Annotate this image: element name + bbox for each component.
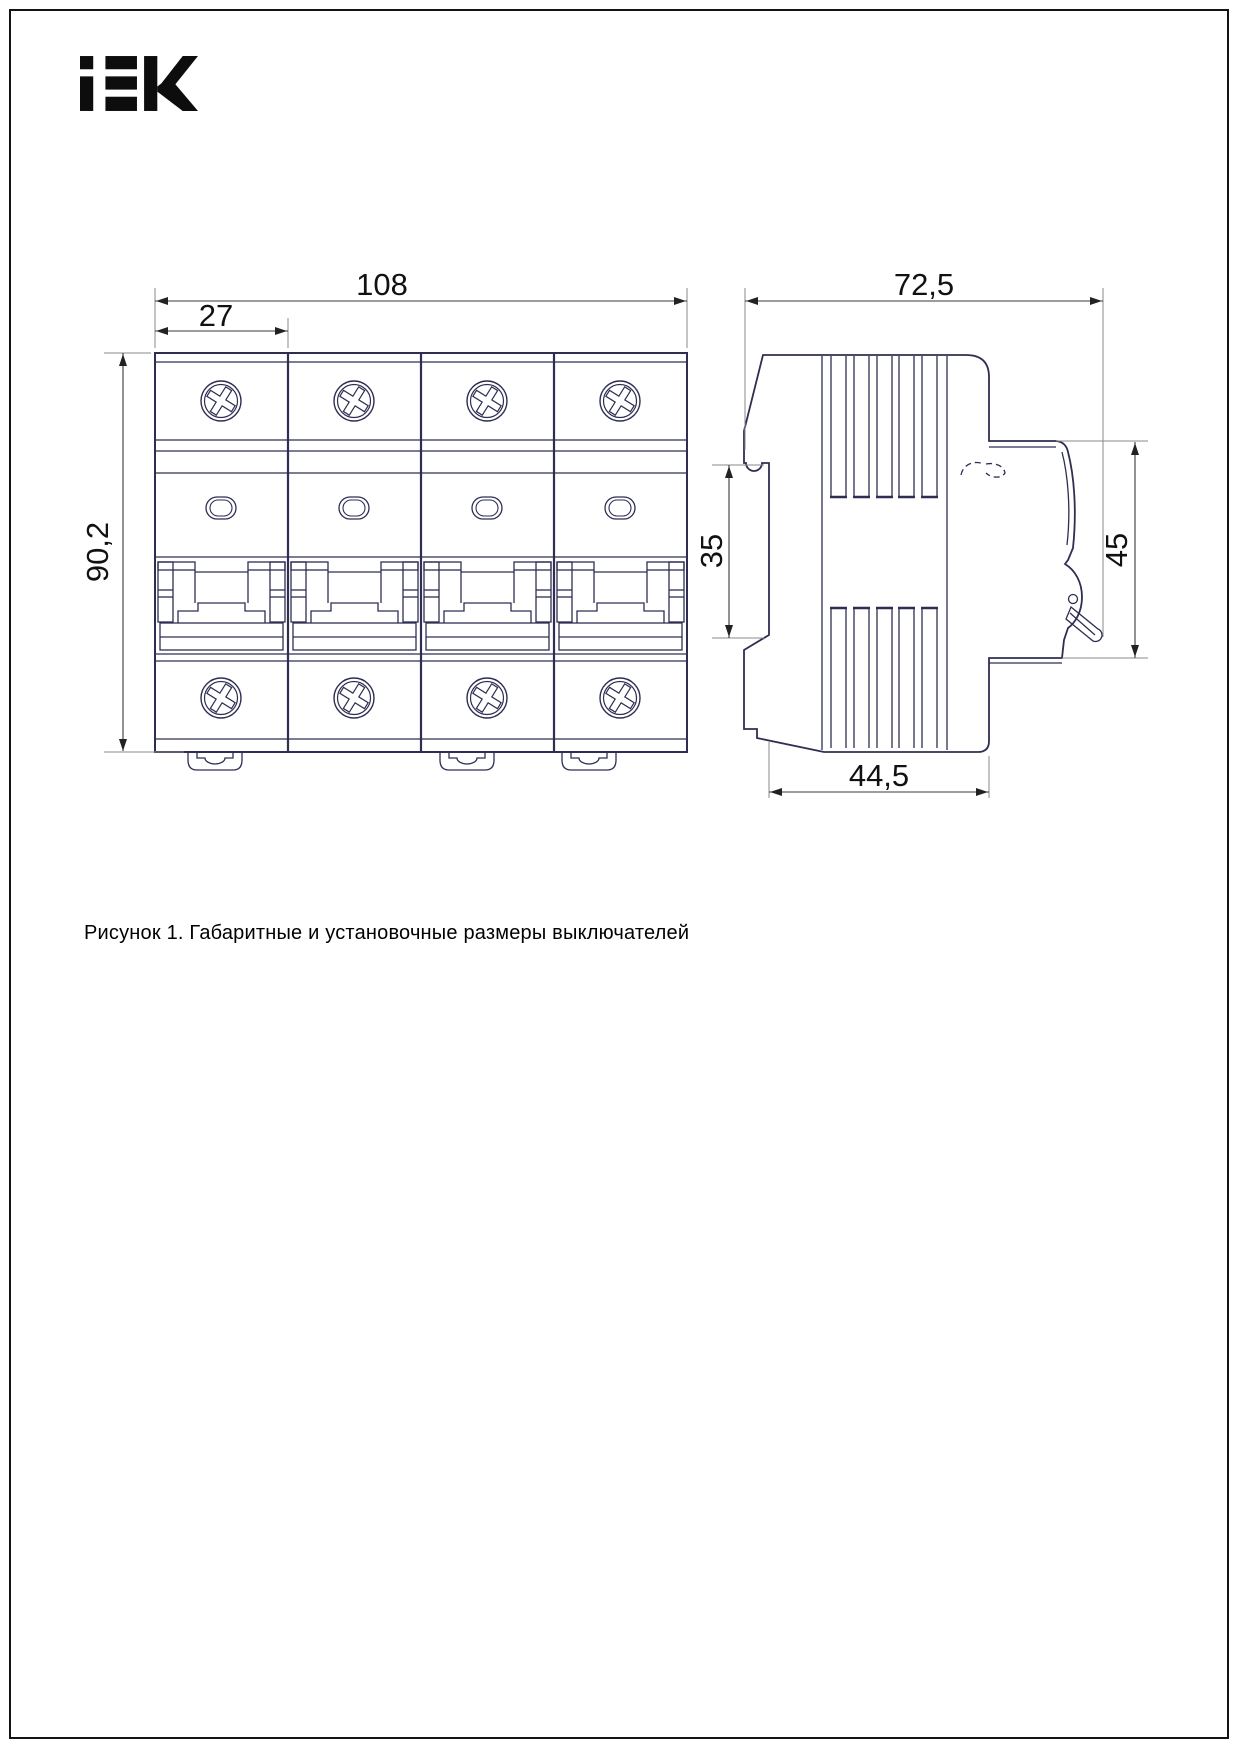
figure-caption: Рисунок 1. Габаритные и установочные раз…: [84, 922, 689, 945]
lever-pivot-hole: [1069, 595, 1078, 604]
vent-slats-top: [830, 356, 938, 497]
din-rail-clips: [188, 752, 616, 770]
dim-module-width: 27: [199, 298, 233, 333]
side-view-outline: [744, 355, 1082, 752]
dim-mount-depth: 44,5: [849, 758, 909, 793]
technical-drawing: 108 27 90,2 72,5 35 45 44,5: [0, 0, 1240, 840]
dim-front-protrusion-height: 45: [1099, 533, 1134, 567]
vent-slats-bottom: [830, 608, 938, 748]
dimension-lines: [123, 301, 1135, 792]
dim-din-slot-height: 35: [694, 534, 729, 568]
dimension-arrows: [119, 297, 1139, 796]
dim-front-height: 90,2: [80, 522, 115, 582]
front-view: [155, 353, 687, 770]
hidden-detail-dashes: [961, 463, 1005, 478]
dim-side-total-width: 72,5: [894, 267, 954, 302]
dim-front-total-width: 108: [356, 267, 408, 302]
pole-separators: [288, 353, 554, 752]
document-page: 108 27 90,2 72,5 35 45 44,5 Рисунок 1. Г…: [0, 0, 1240, 1750]
side-view-details: [822, 356, 1102, 750]
side-view: [744, 355, 1102, 752]
extension-lines: [104, 288, 1148, 798]
